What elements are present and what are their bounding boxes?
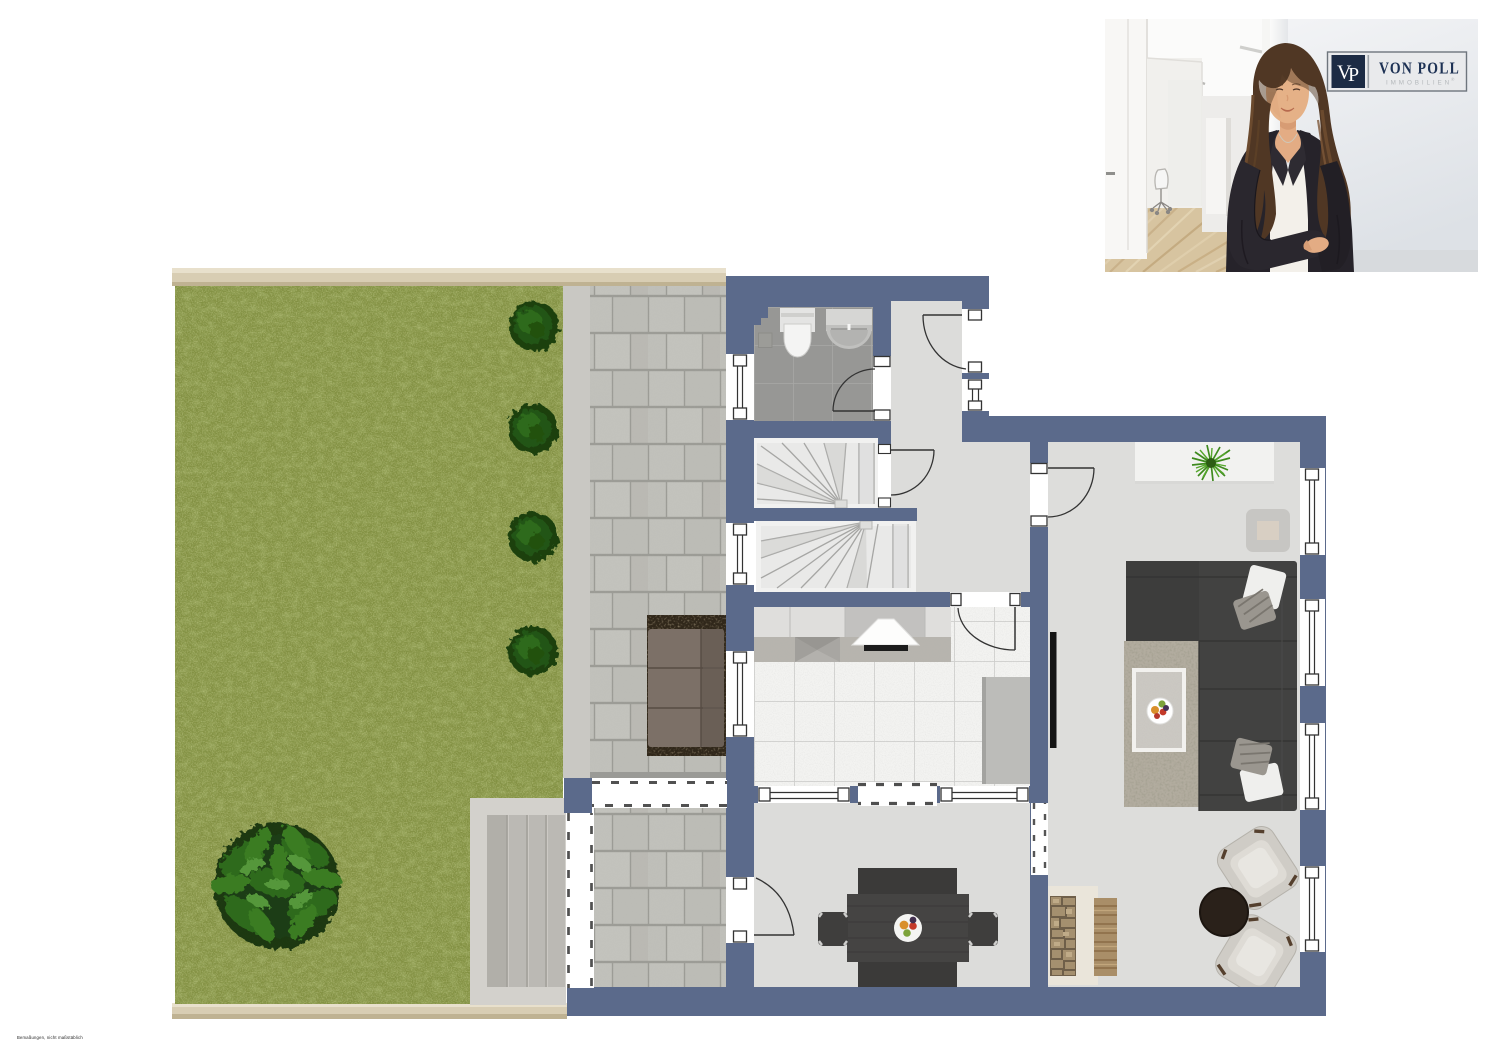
svg-text:IMMOBILIEN: IMMOBILIEN — [1386, 80, 1452, 87]
svg-text:VON POLL: VON POLL — [1379, 59, 1460, 78]
svg-text:P: P — [1348, 64, 1359, 86]
svg-text:Bemaßungen, nicht maßstäblich: Bemaßungen, nicht maßstäblich — [17, 1035, 83, 1040]
